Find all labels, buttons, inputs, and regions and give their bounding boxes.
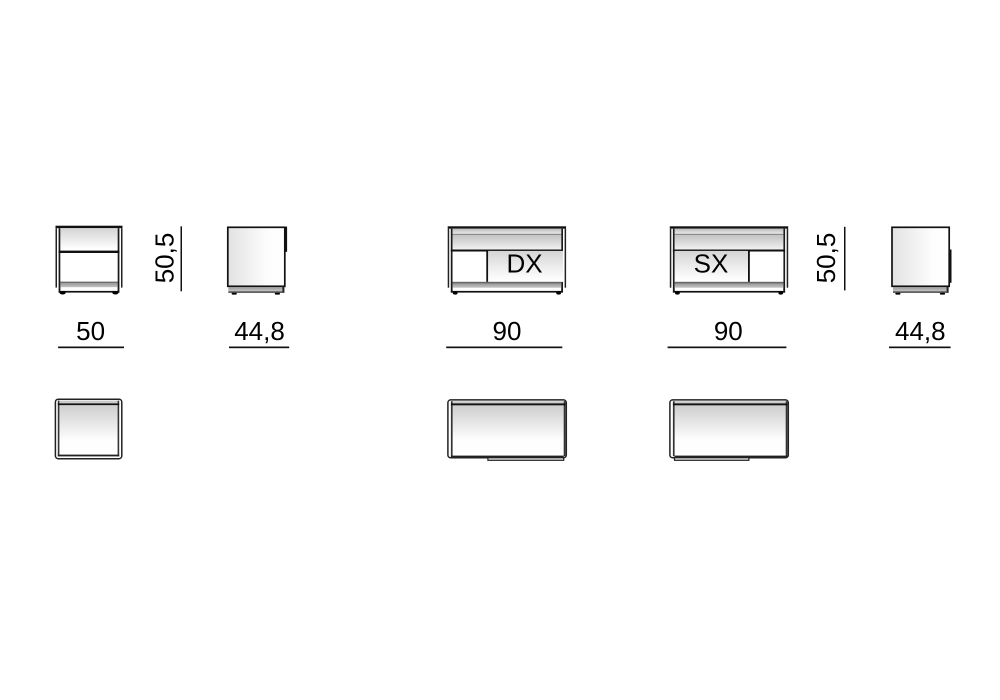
svg-text:50: 50 (76, 316, 105, 346)
svg-text:DX: DX (506, 249, 542, 279)
svg-text:50,5: 50,5 (150, 233, 180, 284)
svg-text:90: 90 (714, 316, 743, 346)
svg-text:SX: SX (694, 249, 729, 279)
svg-text:44,8: 44,8 (895, 316, 946, 346)
svg-text:90: 90 (493, 316, 522, 346)
svg-text:44,8: 44,8 (234, 316, 285, 346)
svg-text:50,5: 50,5 (811, 233, 841, 284)
